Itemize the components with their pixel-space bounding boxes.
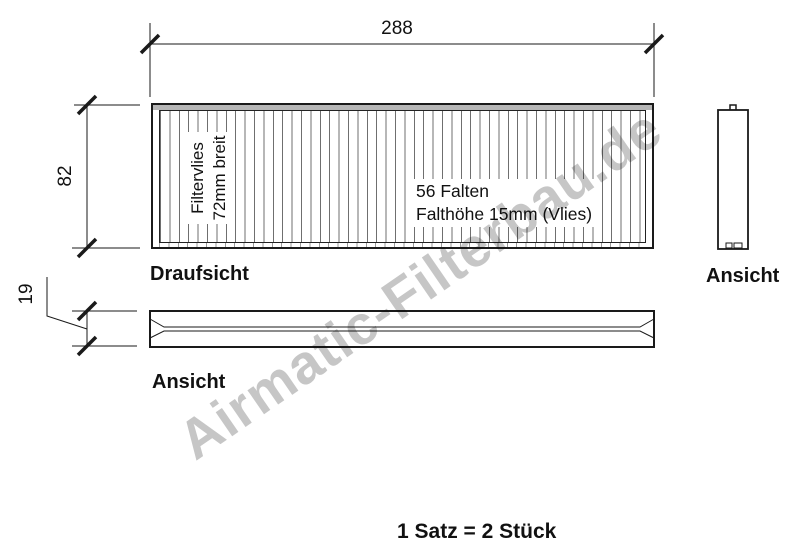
dim-height-value: 82 xyxy=(56,156,76,196)
media-note-line2: 72mm breit xyxy=(209,132,231,224)
dim-thickness-value: 19 xyxy=(17,274,37,314)
media-note: Filtervlies 72mm breit xyxy=(187,132,233,224)
technical-drawing-page: 288 82 19 Filtervlies 72mm breit 56 Falt… xyxy=(0,0,800,552)
filter-frame-bottom-ticks xyxy=(159,243,646,247)
drawing-linework xyxy=(0,0,800,552)
pleat-note: 56 Falten Falthöhe 15mm (Vlies) xyxy=(411,179,597,227)
quantity-note: 1 Satz = 2 Stück xyxy=(397,520,556,544)
pleat-note-line1: 56 Falten xyxy=(416,180,592,203)
dim-19-lines xyxy=(47,277,137,355)
side-view-label: Ansicht xyxy=(152,371,225,394)
top-view-label: Draufsicht xyxy=(150,263,249,286)
dim-width-value: 288 xyxy=(145,19,649,39)
media-note-line1: Filtervlies xyxy=(187,132,209,224)
end-view-label: Ansicht xyxy=(706,265,779,288)
dim-82-lines xyxy=(72,96,140,257)
pleat-note-line2: Falthöhe 15mm (Vlies) xyxy=(416,203,592,226)
end-view-outline xyxy=(718,105,748,249)
side-view-outline xyxy=(150,311,654,347)
